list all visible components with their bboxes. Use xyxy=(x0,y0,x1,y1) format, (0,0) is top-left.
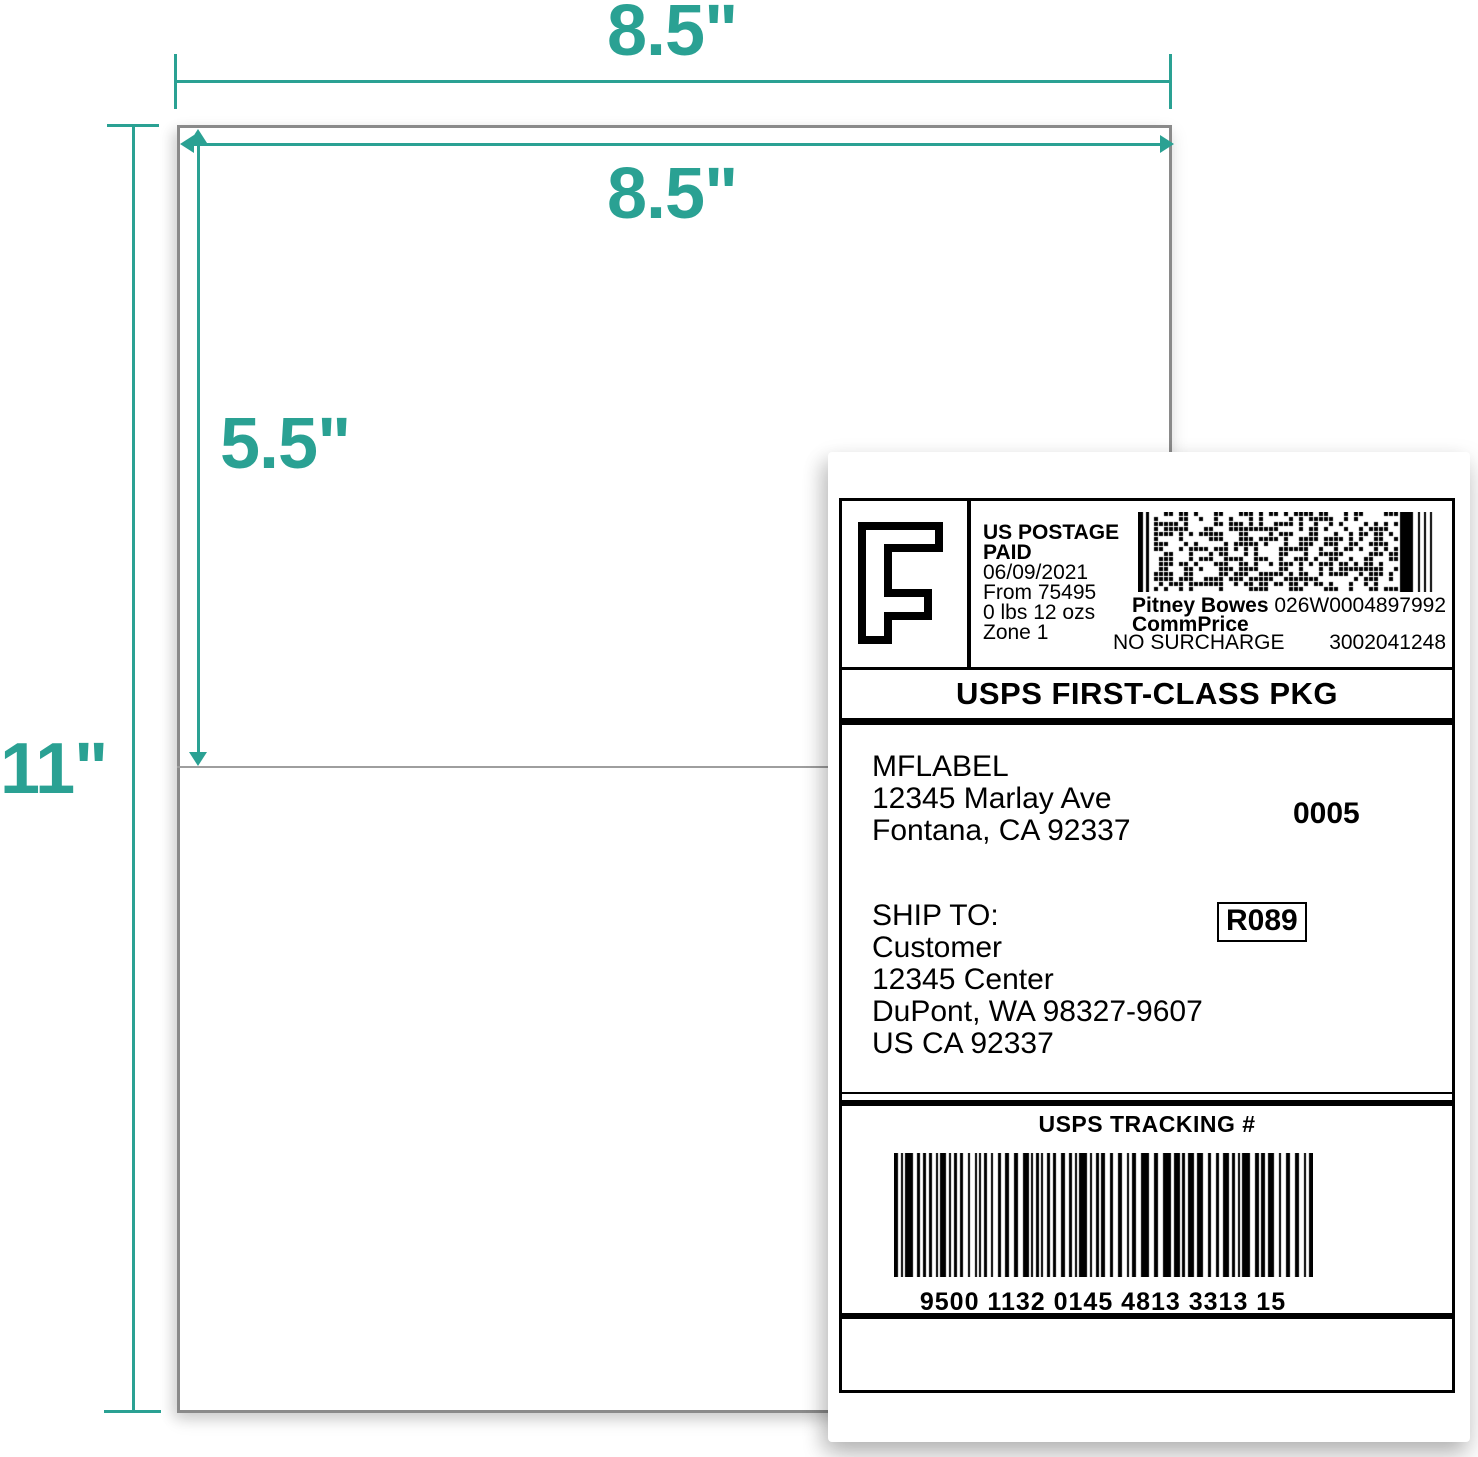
postage-details: US POSTAGE PAID 06/09/2021 From 75495 0 … xyxy=(983,523,1119,643)
label-sheet-dimension-diagram: 8.5" 8.5" 5.5" 11" US POSTAGE PAID xyxy=(0,0,1478,1457)
sender-line: 12345 Marlay Ave xyxy=(872,783,1131,815)
tracking-barcode xyxy=(894,1153,1313,1277)
postage-indicia-cell xyxy=(842,501,971,667)
dim-arrow-line-inner-width xyxy=(190,143,1162,146)
postage-zone: Zone 1 xyxy=(983,623,1119,643)
dim-line-sheet-height xyxy=(132,126,135,1412)
dim-label-sheet-height: 11" xyxy=(0,733,107,805)
postage-weight: 0 lbs 12 ozs xyxy=(983,603,1119,623)
arrowhead-up-icon xyxy=(189,129,207,143)
postage-2d-barcode xyxy=(1138,512,1434,592)
shipping-label: US POSTAGE PAID 06/09/2021 From 75495 0 … xyxy=(839,498,1455,1393)
sender-line: Fontana, CA 92337 xyxy=(872,815,1131,847)
tracking-heading: USPS TRACKING # xyxy=(842,1111,1452,1138)
dim-label-sheet-width-inner: 8.5" xyxy=(607,158,737,230)
postage-paid-line2: PAID xyxy=(983,543,1119,563)
dim-label-half-height: 5.5" xyxy=(220,408,350,480)
arrowhead-down-icon xyxy=(189,752,207,766)
dim-line-sheet-width-top xyxy=(176,80,1172,83)
sender-address: MFLABEL 12345 Marlay Ave Fontana, CA 923… xyxy=(872,751,1131,847)
form-number: 0005 xyxy=(1293,797,1360,831)
tracking-top-rule xyxy=(842,1100,1452,1106)
dim-cap-left xyxy=(174,54,177,109)
arrowhead-right-icon xyxy=(1160,135,1174,153)
dim-cap-bottom xyxy=(104,1410,161,1413)
recipient-line: DuPont, WA 98327-9607 xyxy=(872,996,1203,1028)
postage-section: US POSTAGE PAID 06/09/2021 From 75495 0 … xyxy=(842,501,1452,670)
postage-indicia-f-icon xyxy=(858,522,943,644)
postage-paid-line1: US POSTAGE xyxy=(983,523,1119,543)
postage-origin-zip: From 75495 xyxy=(983,583,1119,603)
surcharge-row: NO SURCHARGE 3002041248 xyxy=(1113,632,1446,653)
tracking-bottom-rule xyxy=(842,1313,1452,1319)
dim-cap-top xyxy=(107,124,159,127)
recipient-line: Customer xyxy=(872,932,1203,964)
recipient-line: US CA 92337 xyxy=(872,1028,1203,1060)
address-section: MFLABEL 12345 Marlay Ave Fontana, CA 923… xyxy=(842,725,1452,1094)
meter-code: 026W0004897992 xyxy=(1274,595,1446,616)
route-code-box: R089 xyxy=(1217,902,1307,942)
account-number: 3002041248 xyxy=(1329,632,1446,653)
service-banner: USPS FIRST-CLASS PKG xyxy=(842,670,1452,725)
recipient-line: 12345 Center xyxy=(872,964,1203,996)
recipient-address: SHIP TO: Customer 12345 Center DuPont, W… xyxy=(872,900,1203,1060)
dim-cap-right xyxy=(1169,54,1172,109)
shipping-label-card: US POSTAGE PAID 06/09/2021 From 75495 0 … xyxy=(828,452,1470,1442)
postage-date: 06/09/2021 xyxy=(983,563,1119,583)
dim-arrow-line-half-height xyxy=(197,138,200,756)
surcharge-note: NO SURCHARGE xyxy=(1113,632,1285,653)
ship-to-heading: SHIP TO: xyxy=(872,900,1203,932)
sender-line: MFLABEL xyxy=(872,751,1131,783)
dim-label-sheet-width-top: 8.5" xyxy=(607,0,737,67)
tracking-section: USPS TRACKING # 9500 1132 0145 4813 3313… xyxy=(842,1107,1452,1313)
